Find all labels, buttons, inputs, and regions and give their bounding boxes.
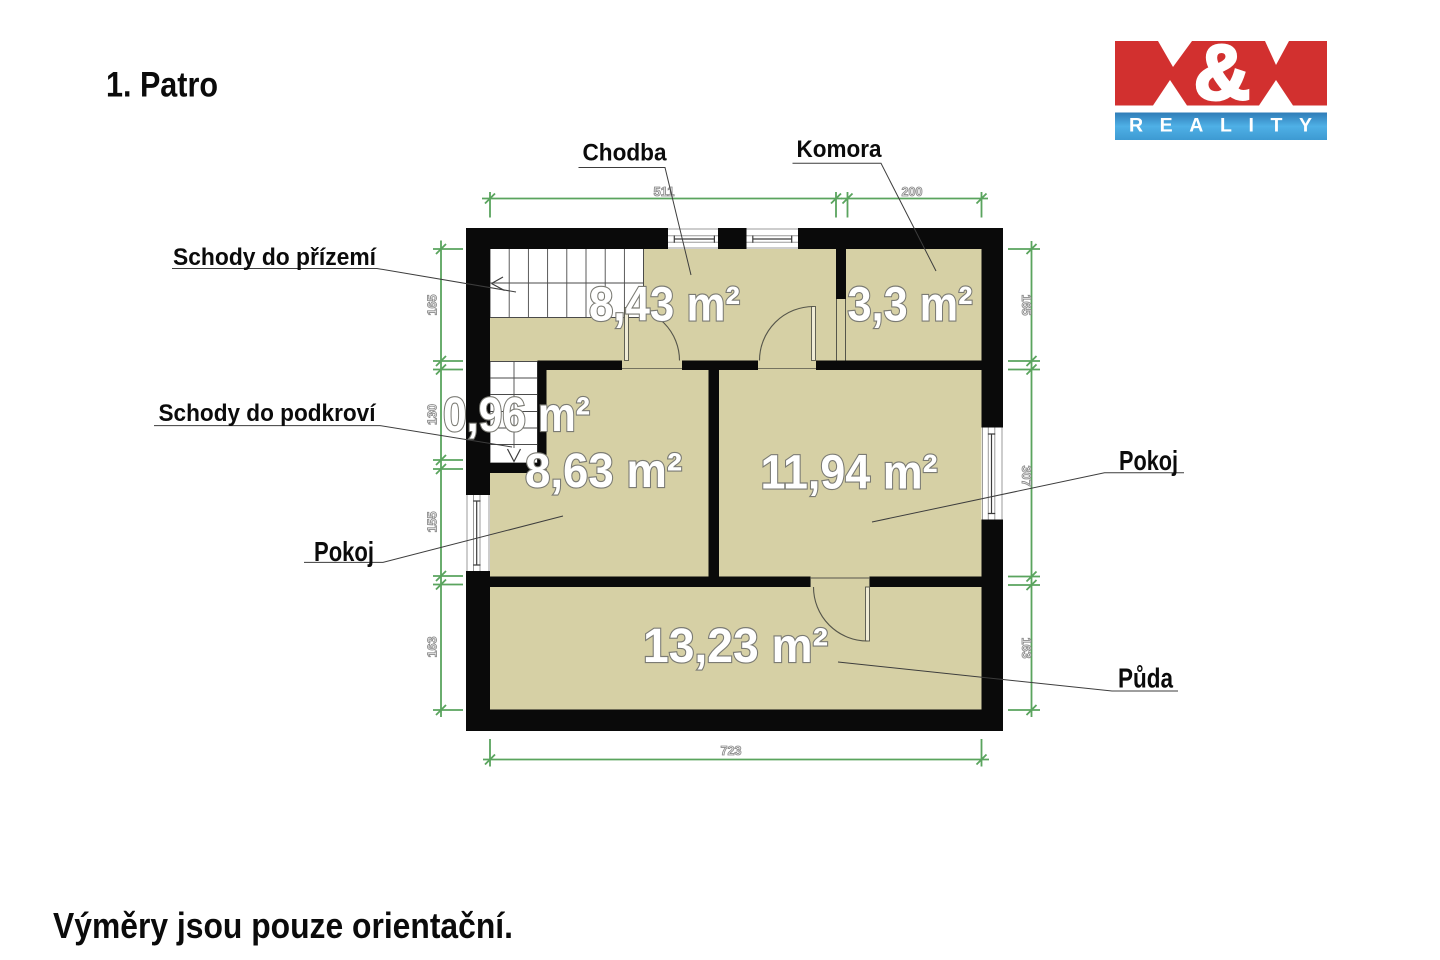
svg-text:8,63 m²: 8,63 m² — [525, 445, 682, 498]
svg-text:163: 163 — [426, 636, 440, 657]
svg-text:Pokoj: Pokoj — [1119, 445, 1178, 476]
svg-text:1. Patro: 1. Patro — [106, 66, 218, 105]
svg-text:307: 307 — [1019, 466, 1033, 487]
svg-text:3,3 m²: 3,3 m² — [848, 279, 973, 332]
svg-text:200: 200 — [902, 185, 923, 199]
svg-text:Pokoj: Pokoj — [314, 536, 374, 567]
svg-text:Schody do přízemí: Schody do přízemí — [173, 244, 377, 271]
svg-text:130: 130 — [426, 404, 440, 425]
svg-text:0,96 m²: 0,96 m² — [443, 389, 590, 442]
svg-text:Chodba: Chodba — [583, 140, 667, 167]
svg-text:165: 165 — [426, 294, 440, 315]
svg-text:&: & — [1194, 28, 1250, 116]
svg-text:155: 155 — [426, 511, 440, 532]
svg-text:8,43 m²: 8,43 m² — [589, 279, 740, 332]
svg-text:REALITY: REALITY — [1129, 115, 1329, 137]
svg-text:723: 723 — [721, 744, 742, 758]
svg-text:Komora: Komora — [797, 136, 882, 163]
svg-text:13,23 m²: 13,23 m² — [643, 620, 828, 673]
svg-text:163: 163 — [1019, 638, 1033, 659]
svg-text:Výměry jsou pouze orientační.: Výměry jsou pouze orientační. — [53, 905, 513, 946]
svg-text:165: 165 — [1019, 295, 1033, 316]
svg-text:Schody do podkroví: Schody do podkroví — [159, 400, 377, 427]
svg-text:11,94 m²: 11,94 m² — [761, 447, 938, 500]
svg-text:Půda: Půda — [1118, 663, 1173, 694]
